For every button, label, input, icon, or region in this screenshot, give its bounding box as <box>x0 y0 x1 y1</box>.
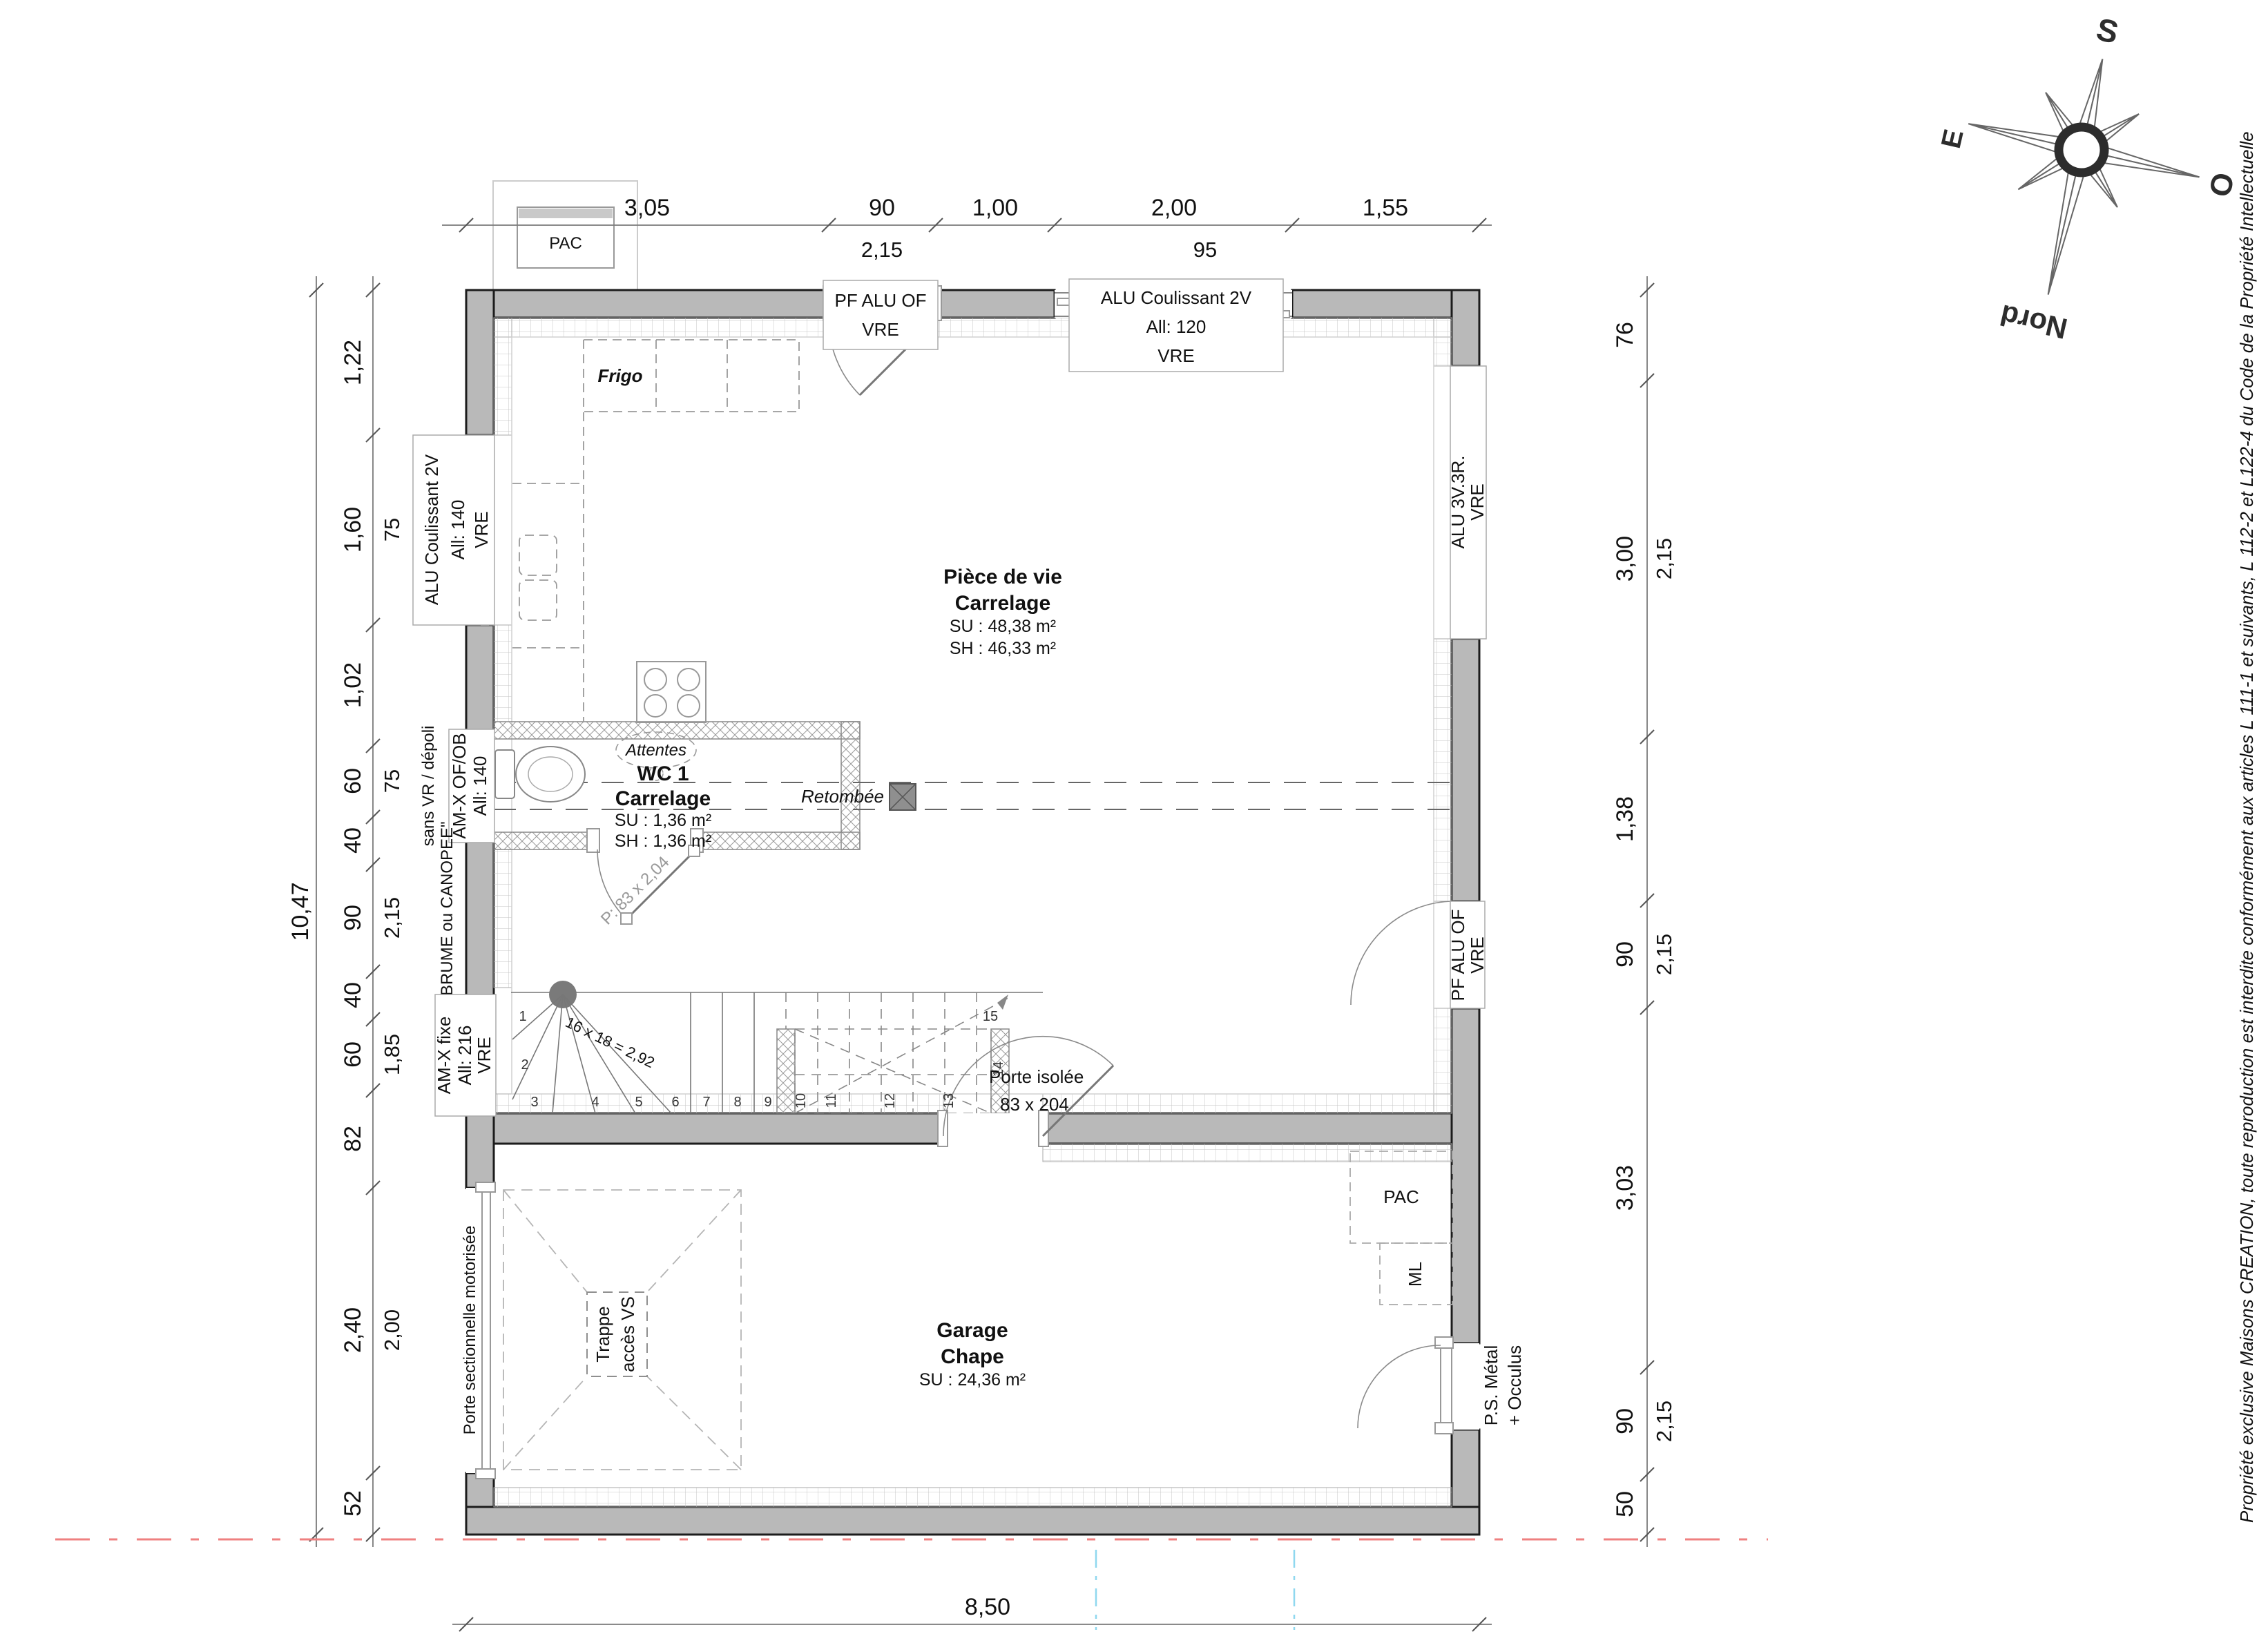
compass-rose: S O E Nord <box>1935 11 2240 345</box>
retombee-label: Retombée <box>801 786 884 807</box>
top-slider-label: VRE <box>1157 345 1194 366</box>
compass-south: S <box>2093 11 2122 51</box>
dim-top-sub: 2,15 <box>861 238 903 262</box>
sans-vr-label: sans VR / dépoli <box>419 726 438 847</box>
fixed-window-label: VRE <box>474 1037 494 1073</box>
dim-left: 2,40 <box>340 1307 366 1353</box>
top-door-label: PF ALU OF <box>835 290 927 311</box>
dim-left-outer: 10,47 <box>287 882 314 941</box>
dim-left: 1,02 <box>340 662 366 708</box>
dim-right-sub: 2,15 <box>1652 538 1676 579</box>
svg-text:11: 11 <box>824 1094 839 1108</box>
garage-service-door <box>1358 1337 1479 1434</box>
svg-text:9: 9 <box>764 1095 771 1110</box>
dim-left: 82 <box>340 1126 366 1152</box>
svg-text:2: 2 <box>521 1057 528 1073</box>
kitchen-units <box>512 340 799 722</box>
compass-north: Nord <box>1997 298 2070 345</box>
right-door-label: PF ALU OF <box>1448 910 1468 1001</box>
garage-pac-label: PAC <box>1383 1186 1419 1207</box>
staircase <box>511 981 1043 1113</box>
trappe-label: accès VS <box>617 1296 638 1372</box>
dim-left: 40 <box>340 827 366 854</box>
dim-left: 60 <box>340 1041 366 1068</box>
dim-right-sub: 2,15 <box>1652 1401 1676 1442</box>
dim-left: 90 <box>340 905 366 931</box>
cooktop <box>637 662 706 722</box>
garage-appliances <box>1350 1151 1452 1305</box>
brume-canopee-label: "BRUME ou CANOPEE" <box>438 821 457 1001</box>
dim-left: 1,60 <box>340 507 366 552</box>
dim-right: 3,00 <box>1612 536 1638 581</box>
pac-exterior-label: PAC <box>549 234 582 253</box>
kitchen-sink <box>519 535 557 575</box>
dim-left-sub: 2,00 <box>380 1309 404 1351</box>
dim-left-sub: 75 <box>380 769 404 793</box>
washing-machine-label: ML <box>1405 1262 1425 1287</box>
floor-plan-page: PAC <box>0 0 2268 1634</box>
dim-top-sub: 95 <box>1193 238 1217 262</box>
porte-isolee-label: 83 x 204 <box>1000 1094 1069 1115</box>
svg-text:8: 8 <box>733 1095 741 1110</box>
svg-text:7: 7 <box>702 1095 710 1110</box>
top-slider-label: All: 120 <box>1146 316 1207 337</box>
svg-text:14: 14 <box>991 1061 1006 1077</box>
garage-floor: Chape <box>941 1345 1004 1368</box>
room-labels: Pièce de vie Carrelage SU : 48,38 m² SH … <box>615 566 1062 1390</box>
frigo-label: Frigo <box>598 365 643 386</box>
dim-left: 52 <box>340 1490 366 1517</box>
reference-lines <box>55 1539 1768 1630</box>
living-room-floor: Carrelage <box>955 592 1050 615</box>
ps-metal-door-label: + Occulus <box>1504 1345 1525 1425</box>
dim-bottom: 8,50 <box>965 1594 1010 1620</box>
svg-text:12: 12 <box>883 1093 898 1108</box>
svg-text:15: 15 <box>983 1009 998 1024</box>
top-door-label: VRE <box>862 319 898 340</box>
attentes-label: Attentes <box>624 741 686 760</box>
exterior-heat-pump: PAC <box>493 181 637 290</box>
right-window-label: ALU 3V.3R. <box>1448 456 1468 549</box>
wc-door-size-label: P: 83 x 2,04 <box>597 853 673 929</box>
left-slider-label: VRE <box>471 511 492 548</box>
dim-right: 90 <box>1612 1408 1638 1434</box>
top-slider-label: ALU Coulissant 2V <box>1101 287 1252 308</box>
misc-labels: Frigo Attentes Retombée PAC ML Trappe ac… <box>563 365 1425 1372</box>
wc-su: SU : 1,36 m² <box>615 811 711 830</box>
dim-right: 90 <box>1612 941 1638 968</box>
left-slider-label: All: 140 <box>448 500 468 560</box>
right-door-label: VRE <box>1467 936 1488 973</box>
left-slider-label: ALU Coulissant 2V <box>421 454 442 605</box>
dim-right: 76 <box>1612 322 1638 348</box>
dim-left: 60 <box>340 768 366 794</box>
svg-text:10: 10 <box>794 1093 809 1108</box>
fixed-window-label: AM-X fixe <box>434 1017 454 1095</box>
wc-floor: Carrelage <box>615 787 711 810</box>
copyright-text: Propriété exclusive Maisons CREATION, to… <box>2236 131 2257 1523</box>
ps-metal-door-label: P.S. Métal <box>1481 1345 1501 1426</box>
sectional-door-label: Porte sectionnelle motorisée <box>461 1226 479 1435</box>
garage-su: SU : 24,36 m² <box>919 1370 1026 1390</box>
wc-window-label: All: 140 <box>470 756 490 816</box>
floor-plan-drawing: PAC <box>0 0 2268 1634</box>
dim-right: 3,03 <box>1612 1165 1638 1211</box>
dim-top: 3,05 <box>624 195 670 221</box>
dim-right: 1,38 <box>1612 796 1638 842</box>
svg-text:1: 1 <box>519 1009 526 1024</box>
garage-name: Garage <box>936 1319 1008 1342</box>
opening-labels: PF ALU OF VRE ALU Coulissant 2V All: 120… <box>413 279 1525 1434</box>
living-room-name: Pièce de vie <box>943 566 1062 588</box>
svg-text:4: 4 <box>591 1095 599 1110</box>
compass-ring <box>2054 122 2108 177</box>
dim-right-sub: 2,15 <box>1652 934 1676 975</box>
dim-top: 1,00 <box>972 195 1018 221</box>
stair-formula-label: 16 x 18 = 2,92 <box>563 1013 657 1071</box>
dim-left-sub: 2,15 <box>380 897 404 939</box>
svg-text:3: 3 <box>530 1095 538 1110</box>
right-window-label: VRE <box>1467 483 1488 520</box>
fixed-window-label: All: 216 <box>454 1026 475 1086</box>
living-room-su: SU : 48,38 m² <box>950 617 1056 636</box>
dim-top: 2,00 <box>1151 195 1197 221</box>
dim-left-sub: 1,85 <box>380 1034 404 1075</box>
wc-sh: SH : 1,36 m² <box>615 832 711 851</box>
svg-text:5: 5 <box>635 1095 642 1110</box>
wc-name: WC 1 <box>637 762 689 785</box>
trappe-label: Trappe <box>593 1306 613 1362</box>
dim-left: 40 <box>340 982 366 1008</box>
compass-east: E <box>1936 126 1970 151</box>
dim-left: 1,22 <box>340 340 366 385</box>
dim-right: 50 <box>1612 1491 1638 1517</box>
dim-left-sub: 75 <box>380 518 404 541</box>
dim-top: 1,55 <box>1363 195 1408 221</box>
structural-post <box>890 784 916 810</box>
svg-text:6: 6 <box>671 1095 679 1110</box>
svg-text:13: 13 <box>941 1093 957 1108</box>
compass-west: O <box>2202 169 2240 200</box>
toilet <box>495 747 585 802</box>
dim-top: 90 <box>869 195 895 221</box>
living-room-sh: SH : 46,33 m² <box>950 639 1056 658</box>
